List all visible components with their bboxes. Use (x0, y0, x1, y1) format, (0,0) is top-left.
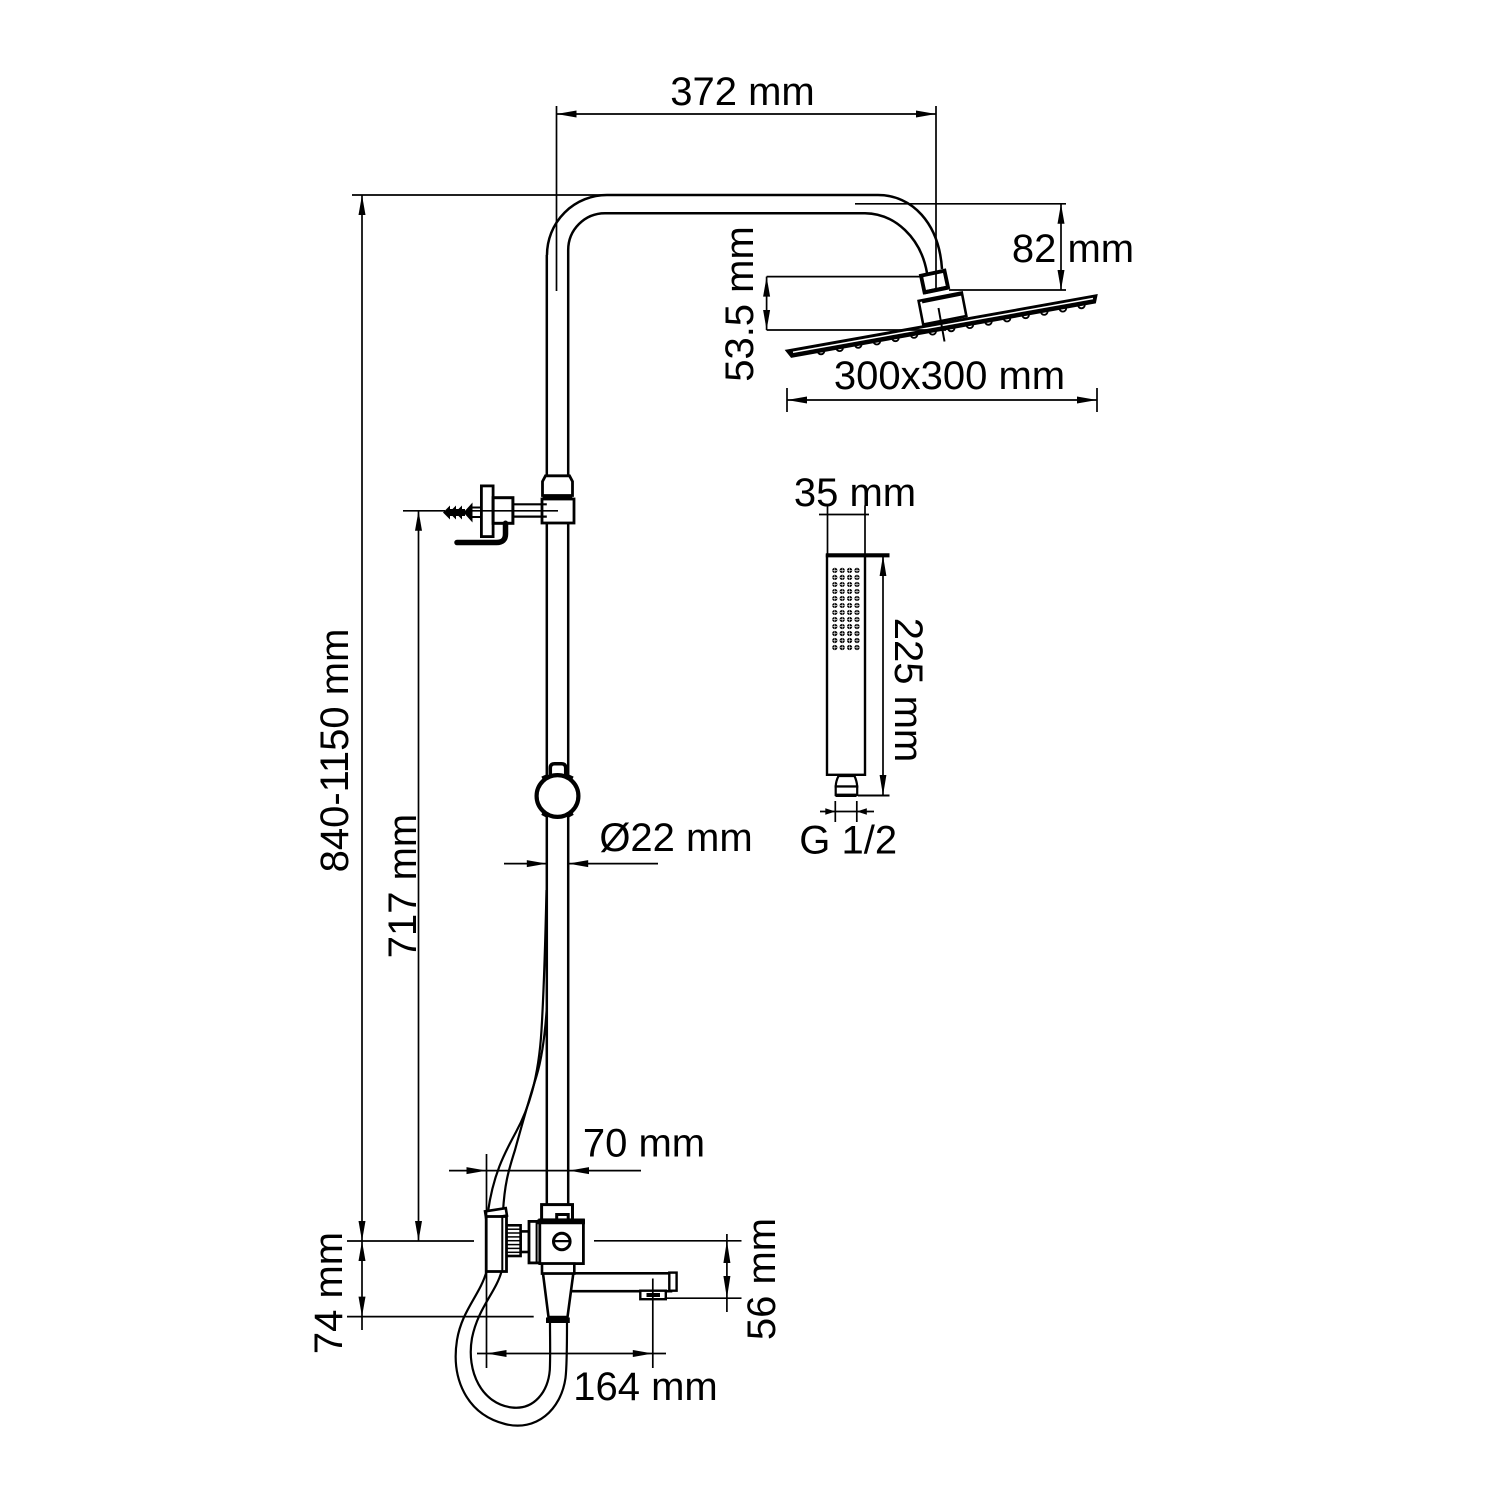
svg-text:74 mm: 74 mm (307, 1232, 351, 1354)
svg-text:70 mm: 70 mm (583, 1122, 705, 1166)
svg-text:372 mm: 372 mm (670, 70, 815, 114)
svg-text:35 mm: 35 mm (794, 471, 916, 515)
svg-text:717 mm: 717 mm (381, 814, 425, 959)
svg-text:Ø22 mm: Ø22 mm (599, 816, 752, 860)
svg-text:53.5 mm: 53.5 mm (718, 226, 762, 382)
svg-text:840-1150 mm: 840-1150 mm (313, 629, 357, 873)
svg-text:G 1/2: G 1/2 (799, 819, 897, 863)
svg-text:164 mm: 164 mm (573, 1365, 718, 1409)
svg-text:82 mm: 82 mm (1012, 227, 1134, 271)
svg-text:56 mm: 56 mm (740, 1218, 784, 1340)
svg-text:300x300 mm: 300x300 mm (834, 354, 1065, 398)
svg-text:225 mm: 225 mm (886, 618, 930, 763)
